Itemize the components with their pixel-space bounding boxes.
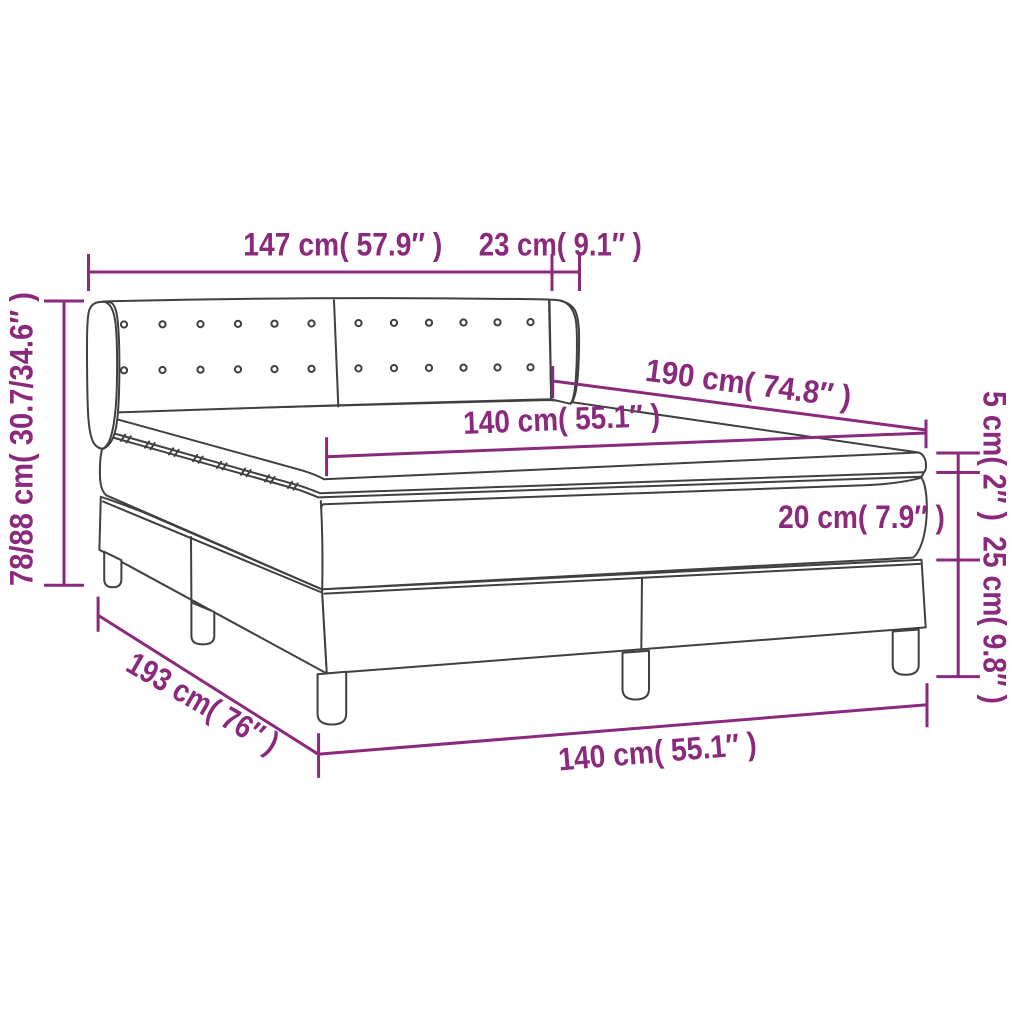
svg-text:23 cm( 9.1″ ): 23 cm( 9.1″ ): [479, 228, 642, 263]
svg-text:5 cm( 2″ ): 5 cm( 2″ ): [976, 391, 1011, 521]
svg-text:25 cm( 9.8″ ): 25 cm( 9.8″ ): [976, 536, 1011, 704]
svg-text:20 cm( 7.9″ ): 20 cm( 7.9″ ): [778, 500, 945, 535]
svg-text:78/88 cm( 30.7/34.6″ ): 78/88 cm( 30.7/34.6″ ): [4, 292, 40, 586]
svg-text:147 cm( 57.9″ ): 147 cm( 57.9″ ): [243, 228, 442, 263]
